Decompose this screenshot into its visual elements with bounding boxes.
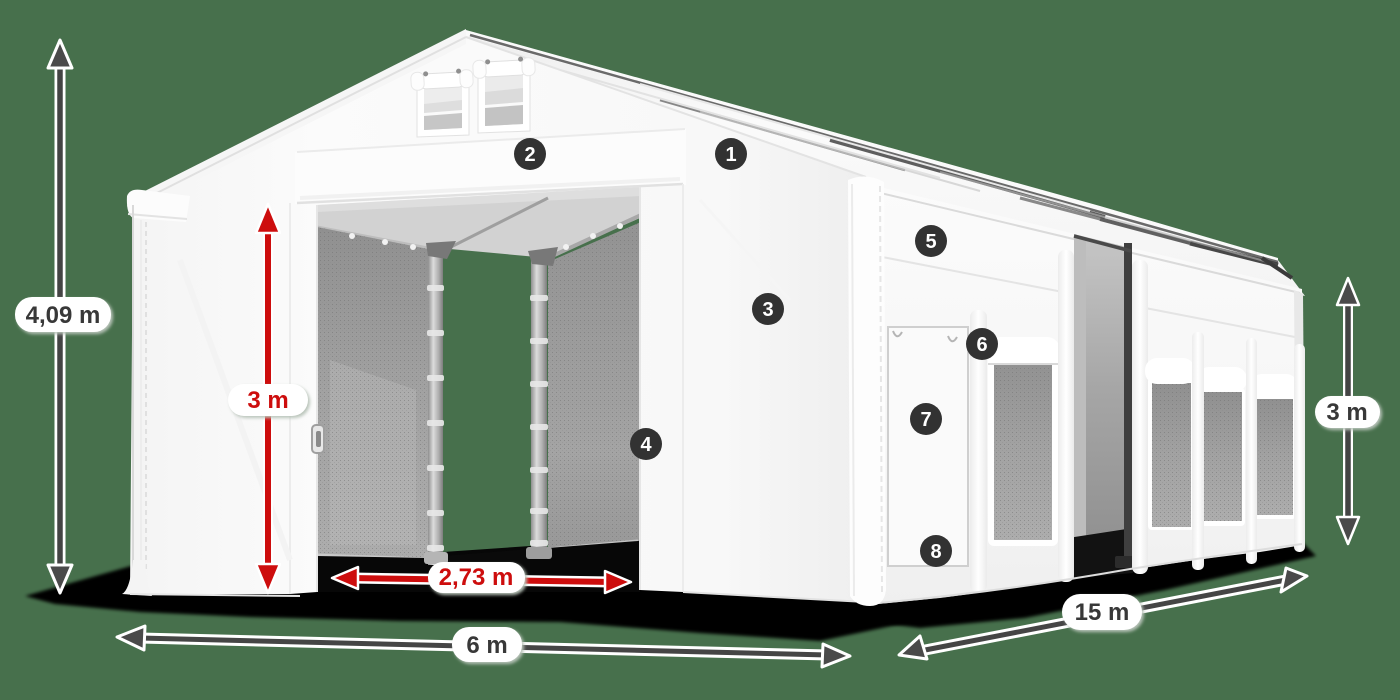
svg-text:7: 7 xyxy=(920,409,931,431)
svg-text:15 m: 15 m xyxy=(1075,599,1130,626)
svg-text:3: 3 xyxy=(762,299,773,321)
svg-text:3 m: 3 m xyxy=(1326,399,1367,426)
svg-text:6 m: 6 m xyxy=(466,632,507,659)
svg-text:2: 2 xyxy=(524,144,535,166)
svg-text:5: 5 xyxy=(925,231,936,253)
svg-text:4: 4 xyxy=(640,434,652,456)
svg-text:1: 1 xyxy=(725,144,736,166)
svg-text:3 m: 3 m xyxy=(247,387,288,414)
svg-text:8: 8 xyxy=(930,541,941,563)
svg-text:4,09 m: 4,09 m xyxy=(26,302,101,329)
svg-text:2,73 m: 2,73 m xyxy=(439,564,514,591)
svg-text:6: 6 xyxy=(976,334,987,356)
